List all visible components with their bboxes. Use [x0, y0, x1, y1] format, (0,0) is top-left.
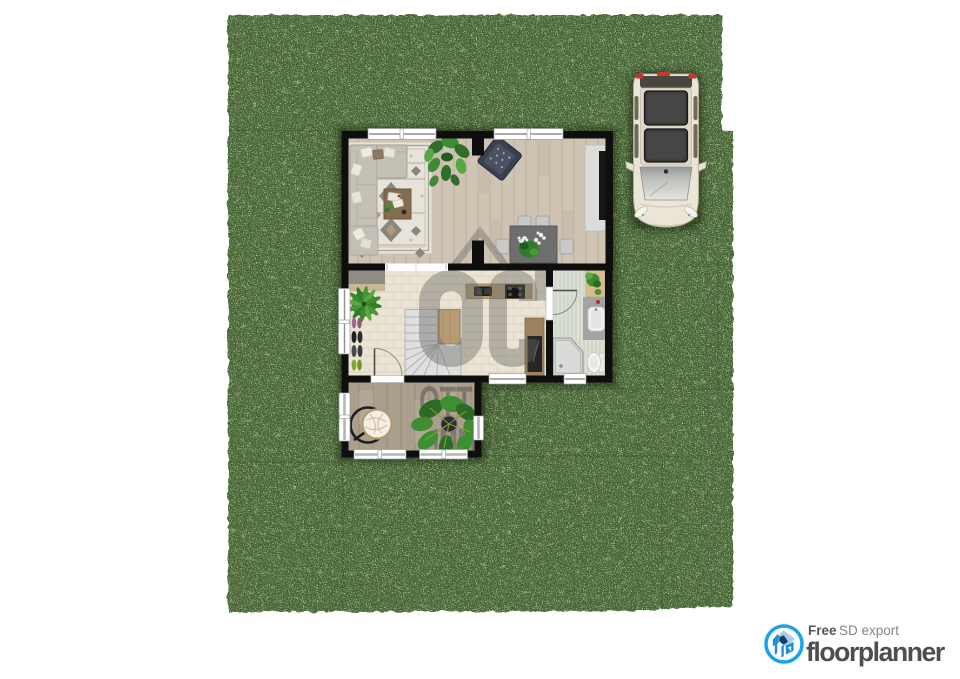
svg-text:Free: Free [808, 623, 837, 638]
svg-text:SD export: SD export [839, 623, 899, 638]
svg-text:floorplanner: floorplanner [806, 637, 945, 667]
